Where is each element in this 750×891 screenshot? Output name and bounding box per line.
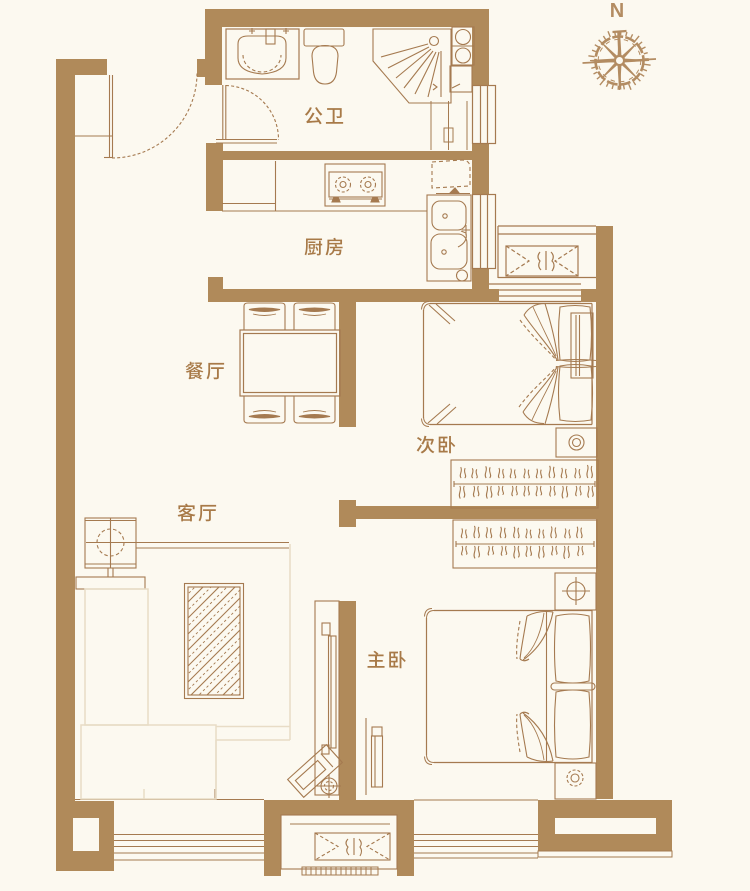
svg-text:N: N xyxy=(610,0,624,22)
